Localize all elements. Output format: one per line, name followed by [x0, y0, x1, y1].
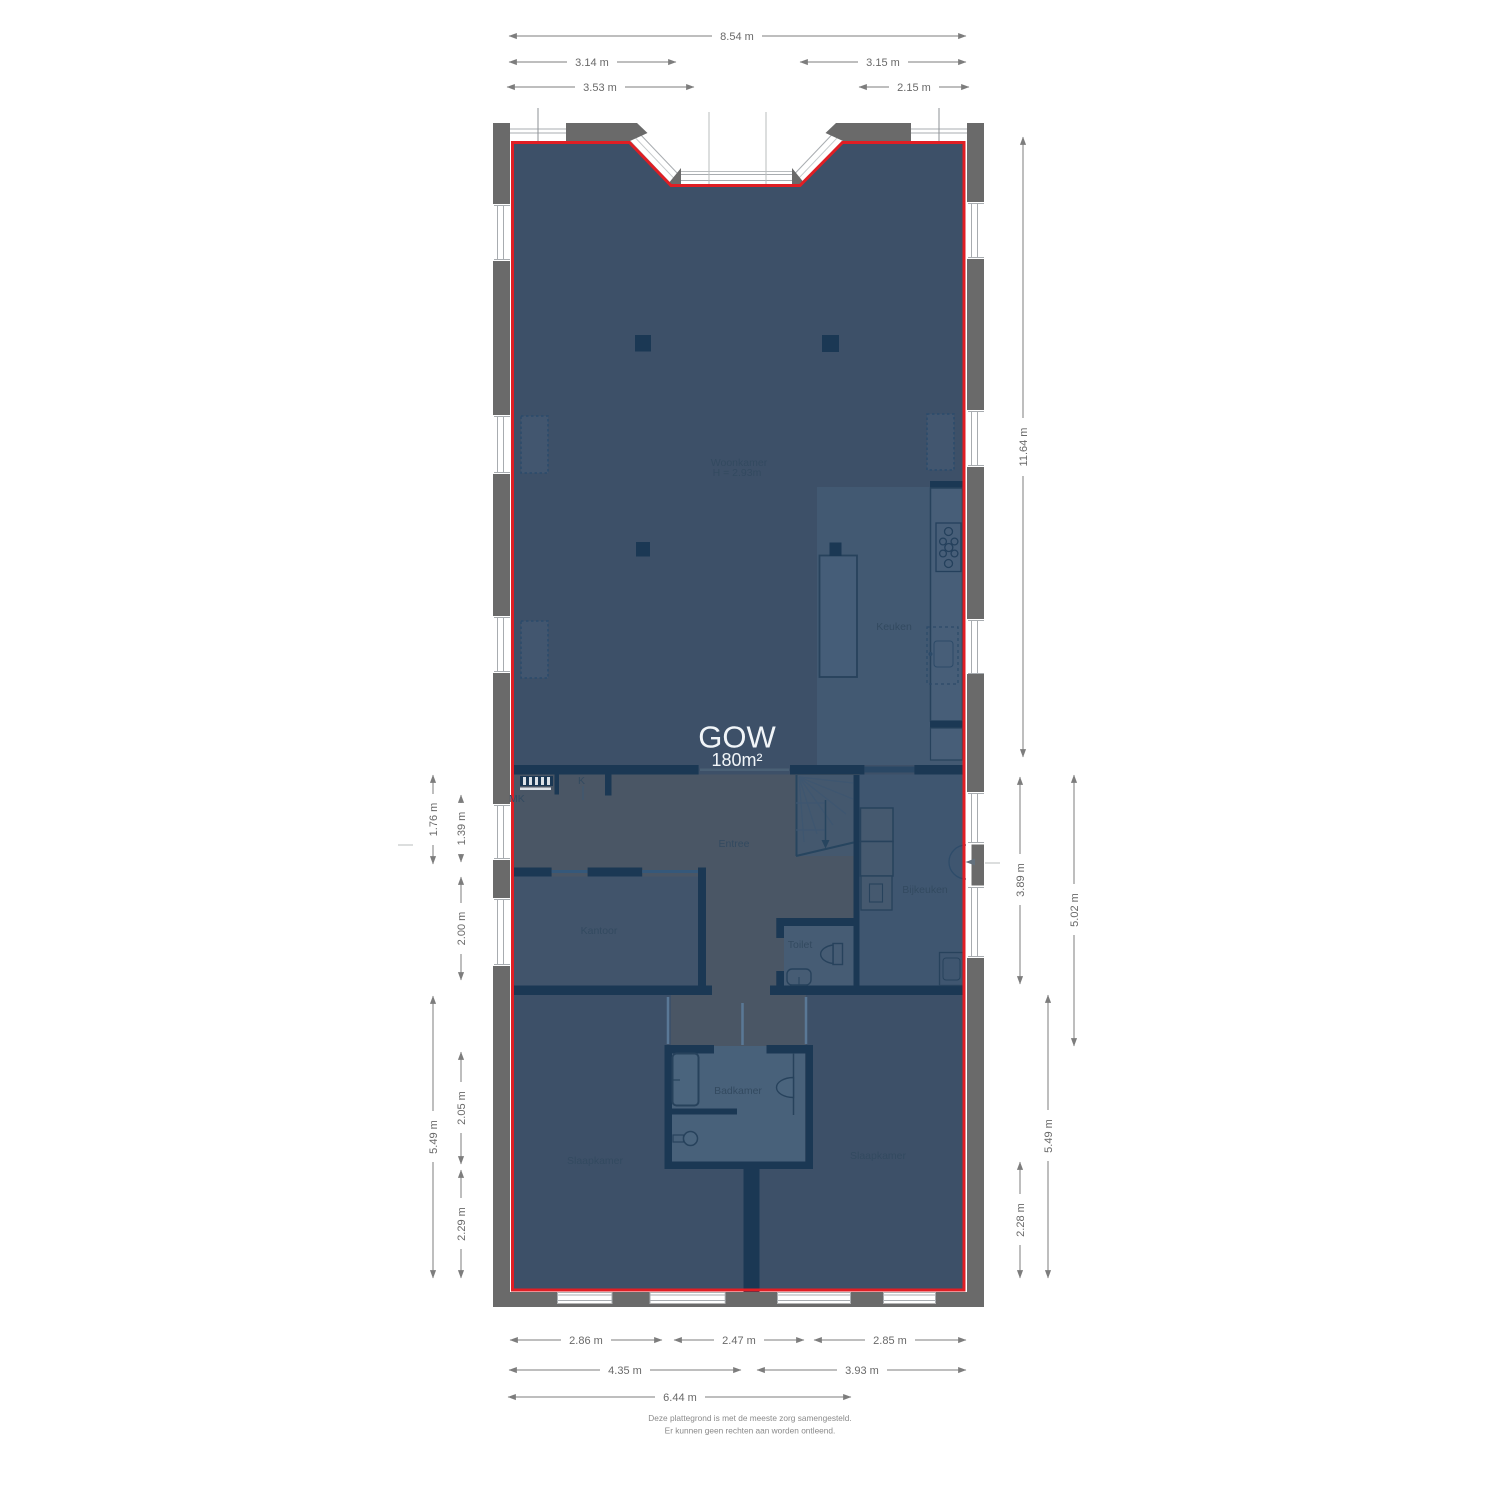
svg-text:5.49 m: 5.49 m — [428, 1120, 440, 1154]
svg-text:2.47 m: 2.47 m — [722, 1335, 756, 1347]
svg-text:Keuken: Keuken — [876, 621, 912, 633]
svg-text:8.54 m: 8.54 m — [720, 31, 754, 43]
svg-text:H = 2.93m: H = 2.93m — [713, 467, 762, 479]
svg-text:3.93 m: 3.93 m — [845, 1365, 879, 1377]
svg-text:3.14 m: 3.14 m — [575, 57, 609, 69]
svg-text:Kantoor: Kantoor — [581, 925, 618, 937]
svg-text:3.15 m: 3.15 m — [866, 57, 900, 69]
svg-text:MK: MK — [509, 793, 525, 805]
svg-text:5.02 m: 5.02 m — [1069, 893, 1081, 927]
svg-text:1.76 m: 1.76 m — [428, 803, 440, 837]
svg-text:Deze plattegrond is met de mee: Deze plattegrond is met de meeste zorg s… — [648, 1413, 851, 1423]
svg-text:5.49 m: 5.49 m — [1043, 1119, 1055, 1153]
svg-text:K: K — [578, 775, 585, 787]
svg-text:Slaapkamer: Slaapkamer — [567, 1155, 624, 1167]
svg-text:Entree: Entree — [719, 838, 750, 850]
svg-text:2.29 m: 2.29 m — [456, 1207, 468, 1241]
svg-text:Er kunnen geen rechten aan wor: Er kunnen geen rechten aan worden ontlee… — [665, 1426, 836, 1436]
svg-text:6.44 m: 6.44 m — [663, 1392, 697, 1404]
svg-text:Badkamer: Badkamer — [714, 1085, 762, 1097]
svg-text:Toilet: Toilet — [788, 939, 813, 951]
svg-text:180m²: 180m² — [711, 750, 762, 770]
svg-text:2.28 m: 2.28 m — [1015, 1203, 1027, 1237]
svg-text:11.64 m: 11.64 m — [1018, 428, 1030, 467]
svg-text:Slaapkamer: Slaapkamer — [850, 1150, 907, 1162]
svg-text:3.53 m: 3.53 m — [583, 82, 617, 94]
svg-text:2.86 m: 2.86 m — [569, 1335, 603, 1347]
svg-text:2.00 m: 2.00 m — [456, 912, 468, 946]
svg-text:1.39 m: 1.39 m — [456, 812, 468, 846]
svg-text:Bijkeuken: Bijkeuken — [902, 884, 948, 896]
svg-text:2.85 m: 2.85 m — [873, 1335, 907, 1347]
svg-text:3.89 m: 3.89 m — [1015, 863, 1027, 897]
svg-text:4.35 m: 4.35 m — [608, 1365, 642, 1377]
svg-text:2.05 m: 2.05 m — [456, 1091, 468, 1125]
svg-text:2.15 m: 2.15 m — [897, 82, 931, 94]
